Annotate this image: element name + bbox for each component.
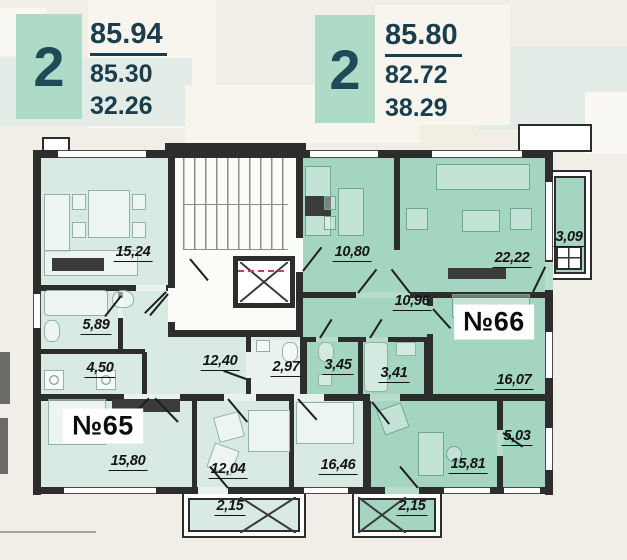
room-area-label: 12,40	[201, 353, 240, 371]
wall-kitchen66-divider	[394, 158, 400, 250]
entry-threshold-dashed	[238, 270, 284, 272]
sink	[256, 340, 270, 352]
wall-stair-bottom	[168, 330, 303, 337]
room-area-label: 3,09	[553, 229, 584, 247]
window	[33, 294, 41, 328]
room-area-label: 5,03	[501, 428, 532, 446]
room-area-label: 22,22	[493, 250, 532, 268]
room-area-label: 2,15	[396, 498, 427, 516]
room-area-label: 10,80	[333, 244, 372, 262]
elevator-cross-icon	[240, 262, 288, 302]
apartment-number-badge: №66	[454, 305, 534, 340]
window	[310, 150, 378, 158]
dining-table	[338, 188, 364, 236]
staircase	[183, 158, 288, 250]
tv-console	[448, 268, 506, 279]
armchair	[510, 208, 532, 230]
wall-bath65-right-b	[118, 318, 123, 349]
door-gap	[370, 394, 400, 401]
wall-hall65-right	[142, 352, 147, 394]
room-area-label: 4,50	[84, 360, 115, 378]
chair	[72, 222, 86, 238]
room-area-label: 2,97	[270, 359, 301, 377]
chair	[324, 216, 336, 230]
door-gap-balcony309	[545, 262, 553, 290]
room-area-label: 2,15	[214, 498, 245, 516]
room-area-label: 3,41	[378, 365, 409, 383]
window	[545, 428, 553, 470]
room-area-label: 3,45	[322, 357, 353, 375]
door-gap-balcony66	[385, 487, 419, 494]
wall-room1646-room1581	[363, 401, 371, 487]
chair	[132, 222, 146, 238]
room-area-label: 15,80	[109, 453, 148, 471]
room-area-label: 5,89	[80, 317, 111, 335]
window	[444, 487, 490, 494]
door-gap	[246, 352, 251, 378]
room-area-label: 16,07	[495, 372, 534, 390]
room-area-label: 16,46	[319, 457, 358, 475]
chair	[324, 196, 336, 210]
chair	[72, 194, 86, 210]
dining-table	[88, 190, 130, 238]
window	[545, 182, 553, 260]
coffee-table	[462, 210, 500, 232]
armchair	[406, 208, 428, 230]
washing-machine	[44, 370, 64, 390]
sink	[396, 342, 416, 356]
sofa	[436, 164, 530, 190]
window	[64, 487, 156, 494]
window	[432, 150, 522, 158]
sink	[318, 374, 332, 386]
room-area-label: 12,04	[209, 461, 248, 479]
wall-wc66-bath66	[358, 337, 363, 396]
apartment-number-badge: №65	[63, 409, 143, 444]
kitchen-stove	[52, 258, 104, 271]
wall-bed65-room1204	[192, 401, 197, 487]
bathtub	[44, 290, 108, 316]
toilet	[44, 320, 60, 342]
desk	[418, 432, 444, 476]
balcony-cross-icon	[240, 497, 296, 533]
room-area-label: 10,96	[393, 293, 432, 311]
door-gap-entry65	[168, 288, 175, 322]
wall-stair-top	[165, 143, 306, 151]
window	[504, 487, 540, 494]
sofa	[44, 194, 70, 252]
window	[545, 332, 553, 378]
door-gap-balcony65	[198, 487, 228, 494]
window	[304, 487, 348, 494]
window	[58, 150, 146, 158]
bed	[248, 410, 290, 452]
room-area-label: 15,24	[114, 244, 153, 262]
floorplan-page: { "cards": [ {"rooms_count": "2", "area_…	[0, 0, 627, 560]
door-gap-entry66	[296, 238, 303, 272]
balcony-table	[556, 246, 582, 270]
room-area-label: 15,81	[449, 456, 488, 474]
floor-plan: 15,24 5,89 4,50 12,40 2,97 15,80 12,04 1…	[0, 0, 627, 560]
sink	[112, 290, 134, 308]
wall-bath65-bottom	[41, 349, 145, 354]
chair	[132, 194, 146, 210]
wall-bedroom66-left-b	[427, 334, 433, 396]
door-gap	[136, 285, 166, 291]
